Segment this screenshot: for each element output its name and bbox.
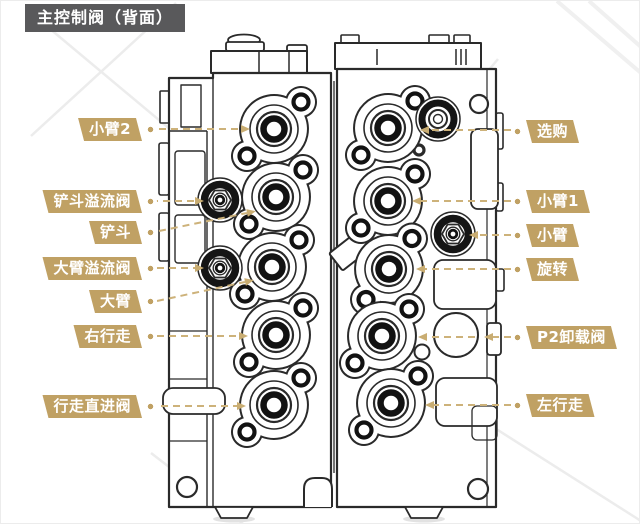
label-travel-right-text: 右行走 xyxy=(73,325,142,348)
label-travel-right: 右行走 xyxy=(73,325,157,348)
main-control-valve-diagram-page: 主控制阀（背面） 小臂2 铲斗溢流阀 铲斗 大臂溢流阀 大臂 右行走 行走直进阀… xyxy=(0,0,640,524)
connector-dot xyxy=(144,262,157,275)
label-arm1: 小臂1 xyxy=(511,190,590,213)
label-bucket-relief-valve-text: 铲斗溢流阀 xyxy=(42,190,142,213)
right-block-cap xyxy=(335,35,481,69)
label-arm: 小臂 xyxy=(511,224,579,247)
bolt-hole xyxy=(177,477,197,497)
connector-dot xyxy=(511,331,524,344)
label-boom-relief-valve: 大臂溢流阀 xyxy=(42,257,157,280)
arm-valve-cartridge xyxy=(431,212,475,256)
connector-dot xyxy=(144,295,157,308)
label-travel-straight-valve: 行走直进阀 xyxy=(42,395,157,418)
label-p2-unload-valve-text: P2卸载阀 xyxy=(526,326,617,349)
connector-dot xyxy=(144,330,157,343)
connector-dot xyxy=(144,123,157,136)
label-bucket: 铲斗 xyxy=(89,221,157,244)
boom-relief-valve-cartridge xyxy=(198,246,242,290)
label-bucket-relief-valve: 铲斗溢流阀 xyxy=(42,190,157,213)
left-block-cap xyxy=(211,35,307,74)
label-travel-left: 左行走 xyxy=(511,394,595,417)
label-travel-left-text: 左行走 xyxy=(526,394,595,417)
label-p2-unload-valve: P2卸载阀 xyxy=(511,326,617,349)
connector-dot xyxy=(511,263,524,276)
label-swing: 旋转 xyxy=(511,258,579,281)
foot xyxy=(405,507,443,518)
label-swing-text: 旋转 xyxy=(526,258,579,281)
connector-dot xyxy=(144,226,157,239)
label-travel-straight-valve-text: 行走直进阀 xyxy=(42,395,142,418)
page-title: 主控制阀（背面） xyxy=(25,4,185,32)
label-arm2: 小臂2 xyxy=(78,118,157,141)
label-optional: 选购 xyxy=(511,120,579,143)
bolt-hole xyxy=(468,479,488,499)
label-boom: 大臂 xyxy=(89,290,157,313)
p2-unload-valve-circle xyxy=(434,313,478,357)
connector-dot xyxy=(511,195,524,208)
label-optional-text: 选购 xyxy=(526,120,579,143)
label-arm1-text: 小臂1 xyxy=(526,190,590,213)
foot xyxy=(215,507,253,518)
label-boom-relief-valve-text: 大臂溢流阀 xyxy=(42,257,142,280)
connector-dot xyxy=(511,399,524,412)
label-bucket-text: 铲斗 xyxy=(89,221,142,244)
connector-dot xyxy=(511,125,524,138)
label-boom-text: 大臂 xyxy=(89,290,142,313)
connector-dot xyxy=(144,400,157,413)
label-arm-text: 小臂 xyxy=(526,224,579,247)
connector-dot xyxy=(511,229,524,242)
bolt-hole xyxy=(470,95,488,113)
connector-dot xyxy=(144,195,157,208)
label-arm2-text: 小臂2 xyxy=(78,118,142,141)
optional-port-ring xyxy=(416,97,460,141)
